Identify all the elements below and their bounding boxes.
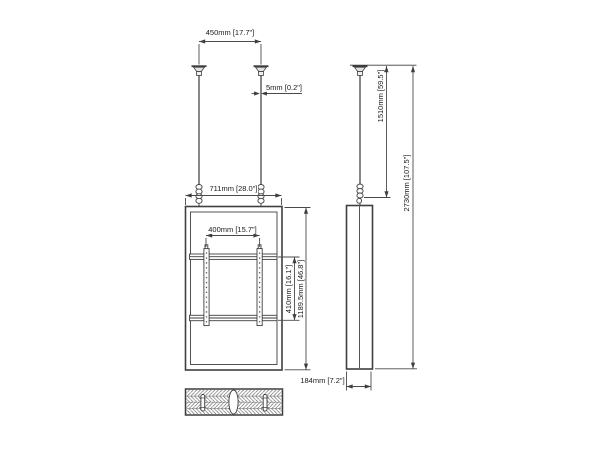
horizontal-rail-top <box>190 254 278 259</box>
ceiling-mount-right-icon <box>254 66 269 75</box>
dim-bracket-width <box>206 233 260 247</box>
arrowhead-icon <box>411 66 415 72</box>
dim-pole-diameter-label: 5mm [0.2"] <box>265 83 303 91</box>
arrowhead-icon <box>304 208 308 214</box>
arrowhead-icon <box>199 39 205 43</box>
arrowhead-icon <box>384 191 388 197</box>
bottom-section-view <box>186 389 283 415</box>
dim-bracket-height-label: 410mm [16.1"] <box>285 263 293 314</box>
arrowhead-icon <box>275 193 281 197</box>
spring-side-icon <box>357 184 363 206</box>
arrowhead-icon <box>186 193 192 197</box>
dim-pole-spacing <box>199 39 261 64</box>
arrowhead-icon <box>365 384 371 388</box>
dim-total-height-label: 2730mm [107.5"] <box>402 154 410 213</box>
horizontal-rail-bottom <box>190 315 278 320</box>
front-view <box>186 66 283 370</box>
dim-pole-spacing-label: 450mm [17.7"] <box>205 28 256 36</box>
dim-panel-depth-label: 184mm [7.2"] <box>299 377 345 385</box>
dim-drop-height-label: 1510mm [59.5"] <box>376 69 384 124</box>
ceiling-mount-left-icon <box>192 66 207 75</box>
technical-drawing-canvas: 450mm [17.7"] 5mm [0.2"] 711mm [28.0"] 4… <box>0 0 600 450</box>
dim-panel-depth <box>347 372 372 391</box>
dim-bracket-width-label: 400mm [15.7"] <box>207 226 258 234</box>
vesa-rail-right <box>257 245 262 326</box>
dim-panel-height-label: 1189.5mm [46.8"] <box>296 258 304 318</box>
arrowhead-icon <box>304 364 308 370</box>
arrowhead-icon <box>255 39 261 43</box>
section-pole-slot-icon <box>229 390 238 414</box>
dim-panel-width-label: 711mm [28.0"] <box>209 185 259 193</box>
arrowhead-icon <box>411 363 415 369</box>
ceiling-mount-side-icon <box>353 66 368 75</box>
arrowhead-icon <box>261 91 267 95</box>
vesa-rail-left <box>204 245 209 326</box>
arrowhead-icon <box>347 384 353 388</box>
dim-pole-diameter <box>252 91 303 95</box>
arrowhead-icon <box>254 91 260 95</box>
